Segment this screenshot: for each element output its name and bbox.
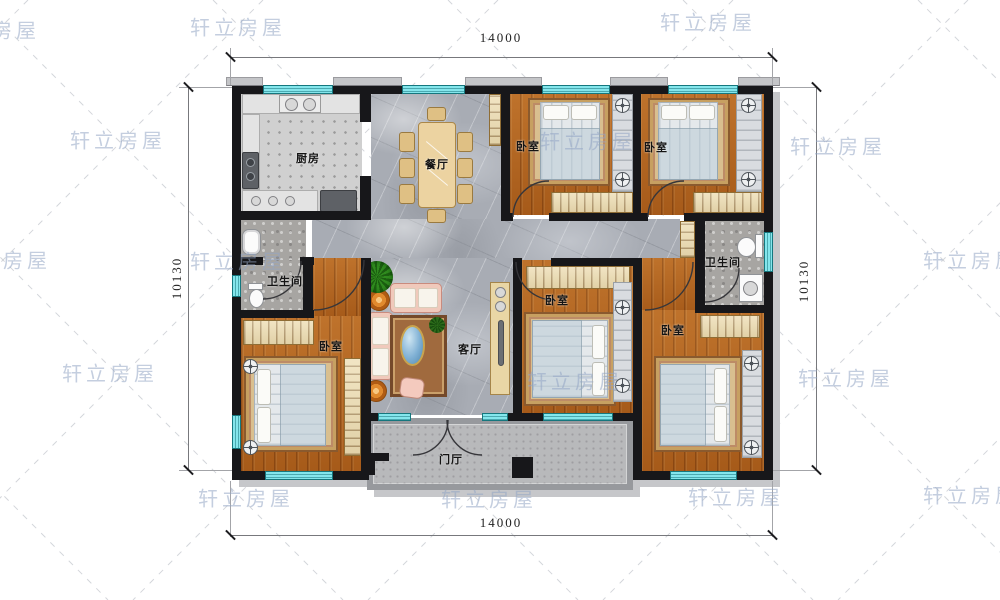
room-label-bath-right: 卫生间	[705, 254, 741, 270]
dimension-left: 10130	[169, 257, 185, 300]
door-swing-arcs	[0, 0, 1000, 600]
dimension-line-right	[816, 87, 817, 470]
door-arc	[413, 420, 448, 455]
dimension-line-top	[230, 57, 772, 58]
room-label-bedroom-top-right: 卧室	[644, 139, 668, 155]
dimension-top: 14000	[480, 30, 523, 46]
door-arc	[648, 181, 684, 217]
door-arc	[447, 420, 482, 455]
room-label-bedroom-top-middle: 卧室	[516, 138, 540, 154]
extension-line	[773, 470, 817, 471]
extension-line	[773, 87, 817, 88]
dimension-right: 10130	[796, 260, 812, 303]
door-arc	[513, 181, 549, 217]
room-label-living: 客厅	[458, 341, 482, 357]
room-label-bedroom-left: 卧室	[319, 338, 343, 354]
extension-line	[772, 48, 773, 85]
dimension-line-bottom	[230, 535, 772, 536]
extension-line	[772, 481, 773, 537]
floor-plan-canvas: 厨房 餐厅 客厅 门厅 卫生间 卫生间 卧室 卧室 卧室 卧室 卧室 14000…	[0, 0, 1000, 600]
room-label-foyer: 门厅	[439, 451, 463, 467]
door-arc	[645, 262, 693, 310]
room-label-dining: 餐厅	[425, 156, 449, 172]
extension-line	[230, 48, 231, 85]
dimension-line-left	[188, 87, 189, 470]
room-label-kitchen: 厨房	[296, 150, 320, 166]
door-arc	[314, 260, 364, 310]
room-label-bath-left: 卫生间	[267, 273, 303, 289]
room-label-bedroom-middle: 卧室	[545, 292, 569, 308]
dimension-bottom: 14000	[480, 515, 523, 531]
room-label-bedroom-bottom-right: 卧室	[661, 322, 685, 338]
door-arc	[705, 268, 739, 302]
extension-line	[230, 481, 231, 537]
